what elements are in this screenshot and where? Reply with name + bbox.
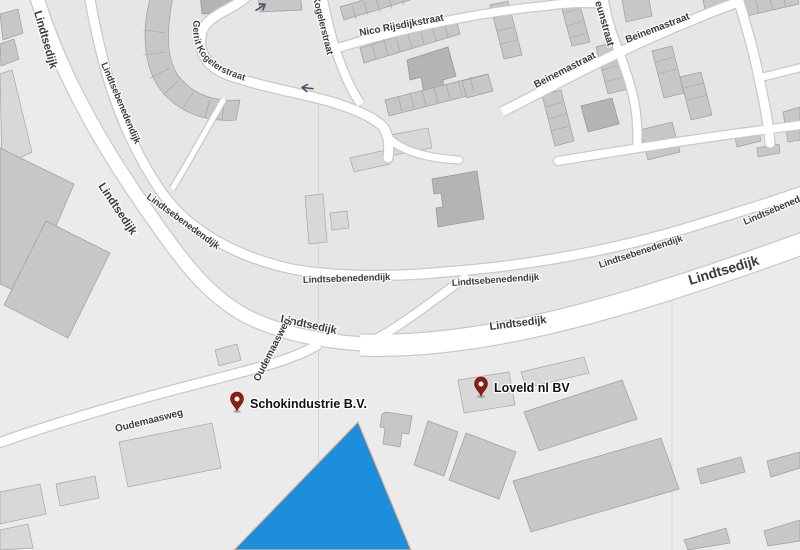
building xyxy=(330,211,349,230)
building xyxy=(305,194,327,244)
map-svg: Lindtsedijk Lindtsedijk Lindtsedijk Lind… xyxy=(0,0,800,550)
poi-label-loveld[interactable]: Loveld nl BV xyxy=(494,381,570,395)
map-canvas[interactable]: Lindtsedijk Lindtsedijk Lindtsedijk Lind… xyxy=(0,0,800,550)
poi-label-schokindustrie[interactable]: Schokindustrie B.V. xyxy=(250,397,367,411)
